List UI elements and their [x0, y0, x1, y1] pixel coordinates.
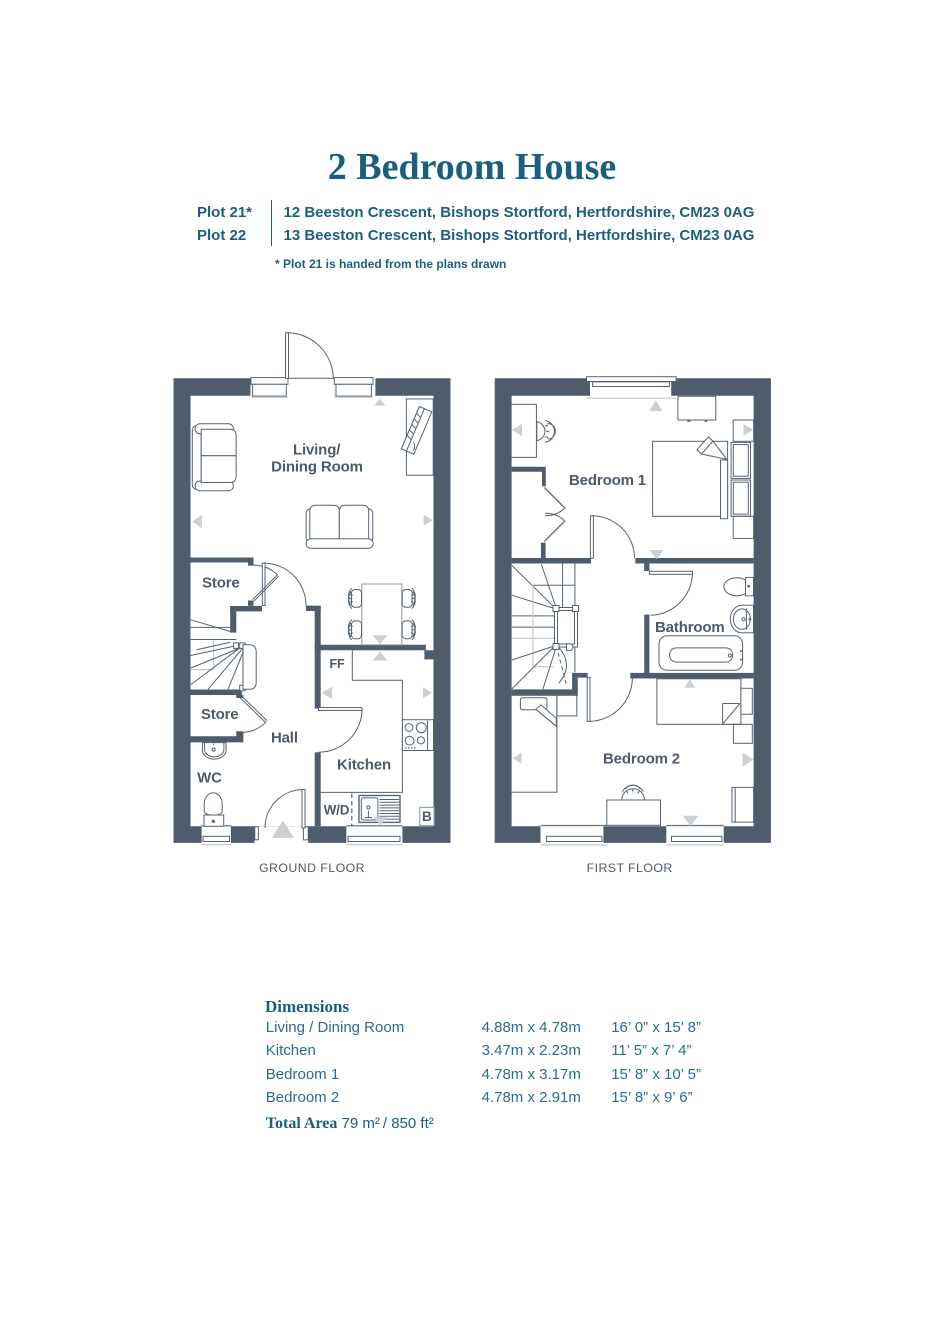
svg-text:WC: WC: [197, 770, 222, 787]
svg-text:Bedroom 2: Bedroom 2: [603, 751, 680, 768]
svg-text:Store: Store: [201, 706, 239, 723]
svg-text:GROUND FLOOR: GROUND FLOOR: [259, 861, 365, 875]
svg-text:FIRST FLOOR: FIRST FLOOR: [587, 861, 673, 875]
svg-text:Bathroom: Bathroom: [655, 619, 725, 636]
svg-text:Living/: Living/: [293, 442, 341, 459]
svg-text:Kitchen: Kitchen: [337, 756, 391, 773]
svg-text:W/D: W/D: [324, 803, 350, 818]
svg-text:FF: FF: [330, 657, 345, 671]
svg-text:Store: Store: [202, 575, 240, 592]
svg-text:Hall: Hall: [271, 730, 298, 747]
svg-text:Bedroom 1: Bedroom 1: [569, 472, 646, 489]
svg-text:B: B: [422, 809, 432, 824]
svg-text:Dining Room: Dining Room: [271, 459, 363, 476]
